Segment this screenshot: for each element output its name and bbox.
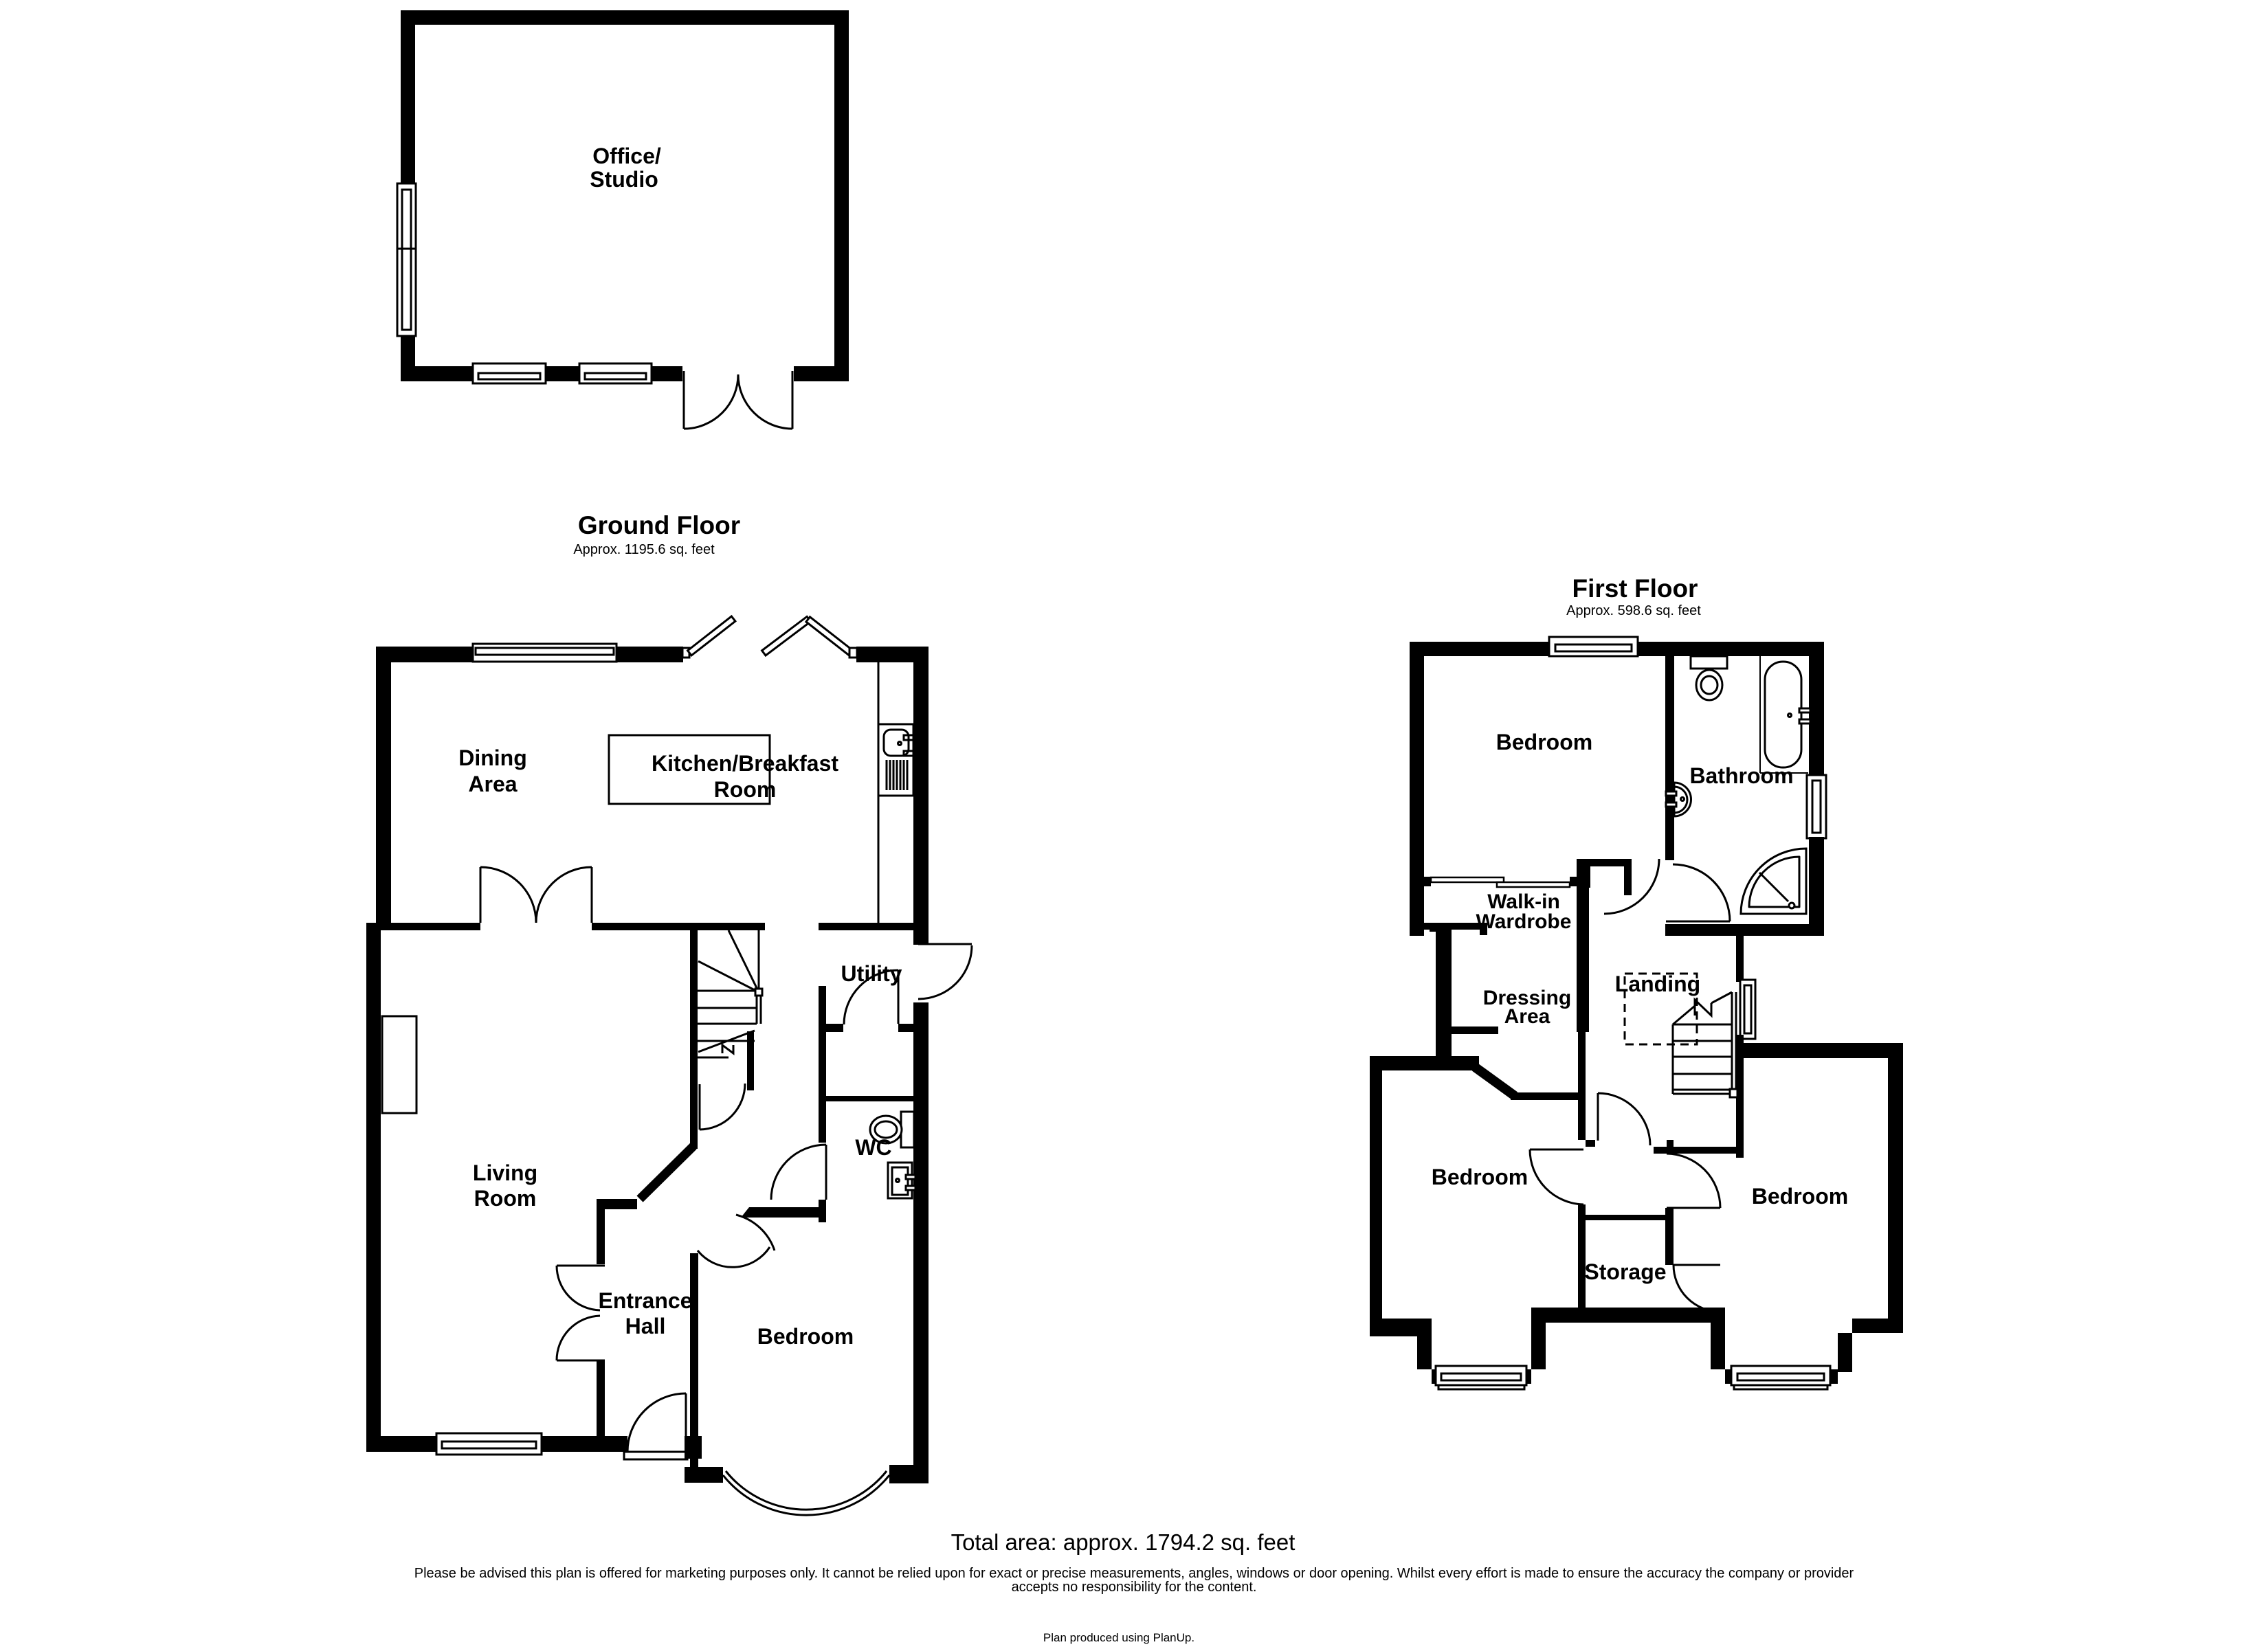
- svg-text:Kitchen/Breakfast: Kitchen/Breakfast: [652, 751, 838, 776]
- svg-text:Ground Floor: Ground Floor: [578, 511, 740, 539]
- svg-text:First Floor: First Floor: [1572, 574, 1698, 603]
- svg-text:Plan produced using PlanUp.: Plan produced using PlanUp.: [1043, 1631, 1194, 1644]
- svg-text:Bedroom: Bedroom: [757, 1324, 854, 1349]
- svg-text:Approx. 598.6 sq. feet: Approx. 598.6 sq. feet: [1566, 603, 1701, 618]
- svg-text:Approx. 1195.6 sq. feet: Approx. 1195.6 sq. feet: [573, 542, 715, 557]
- svg-text:Utility: Utility: [841, 961, 902, 986]
- svg-text:Bedroom: Bedroom: [1496, 730, 1592, 754]
- svg-text:WC: WC: [855, 1135, 891, 1160]
- svg-text:Landing: Landing: [1615, 972, 1700, 996]
- svg-text:Room: Room: [714, 777, 777, 802]
- svg-text:Please be advised this plan is: Please be advised this plan is offered f…: [414, 1566, 1854, 1581]
- svg-text:Living: Living: [473, 1160, 537, 1185]
- svg-text:Office/: Office/: [592, 144, 661, 168]
- svg-text:Hall: Hall: [625, 1314, 666, 1338]
- svg-text:Area: Area: [468, 772, 517, 796]
- svg-text:Studio: Studio: [590, 167, 658, 192]
- svg-text:Storage: Storage: [1584, 1259, 1666, 1284]
- svg-text:Bedroom: Bedroom: [1752, 1184, 1848, 1209]
- svg-text:Wardrobe: Wardrobe: [1476, 910, 1572, 933]
- svg-text:accepts no responsibility for: accepts no responsibility for the conten…: [1012, 1580, 1257, 1595]
- svg-text:Room: Room: [474, 1186, 537, 1211]
- svg-text:Total area: approx. 1794.2 sq.: Total area: approx. 1794.2 sq. feet: [951, 1529, 1296, 1555]
- svg-text:Dining: Dining: [458, 745, 527, 770]
- svg-text:Entrance: Entrance: [599, 1288, 693, 1313]
- svg-text:Bedroom: Bedroom: [1432, 1165, 1528, 1189]
- svg-text:Area: Area: [1504, 1005, 1550, 1028]
